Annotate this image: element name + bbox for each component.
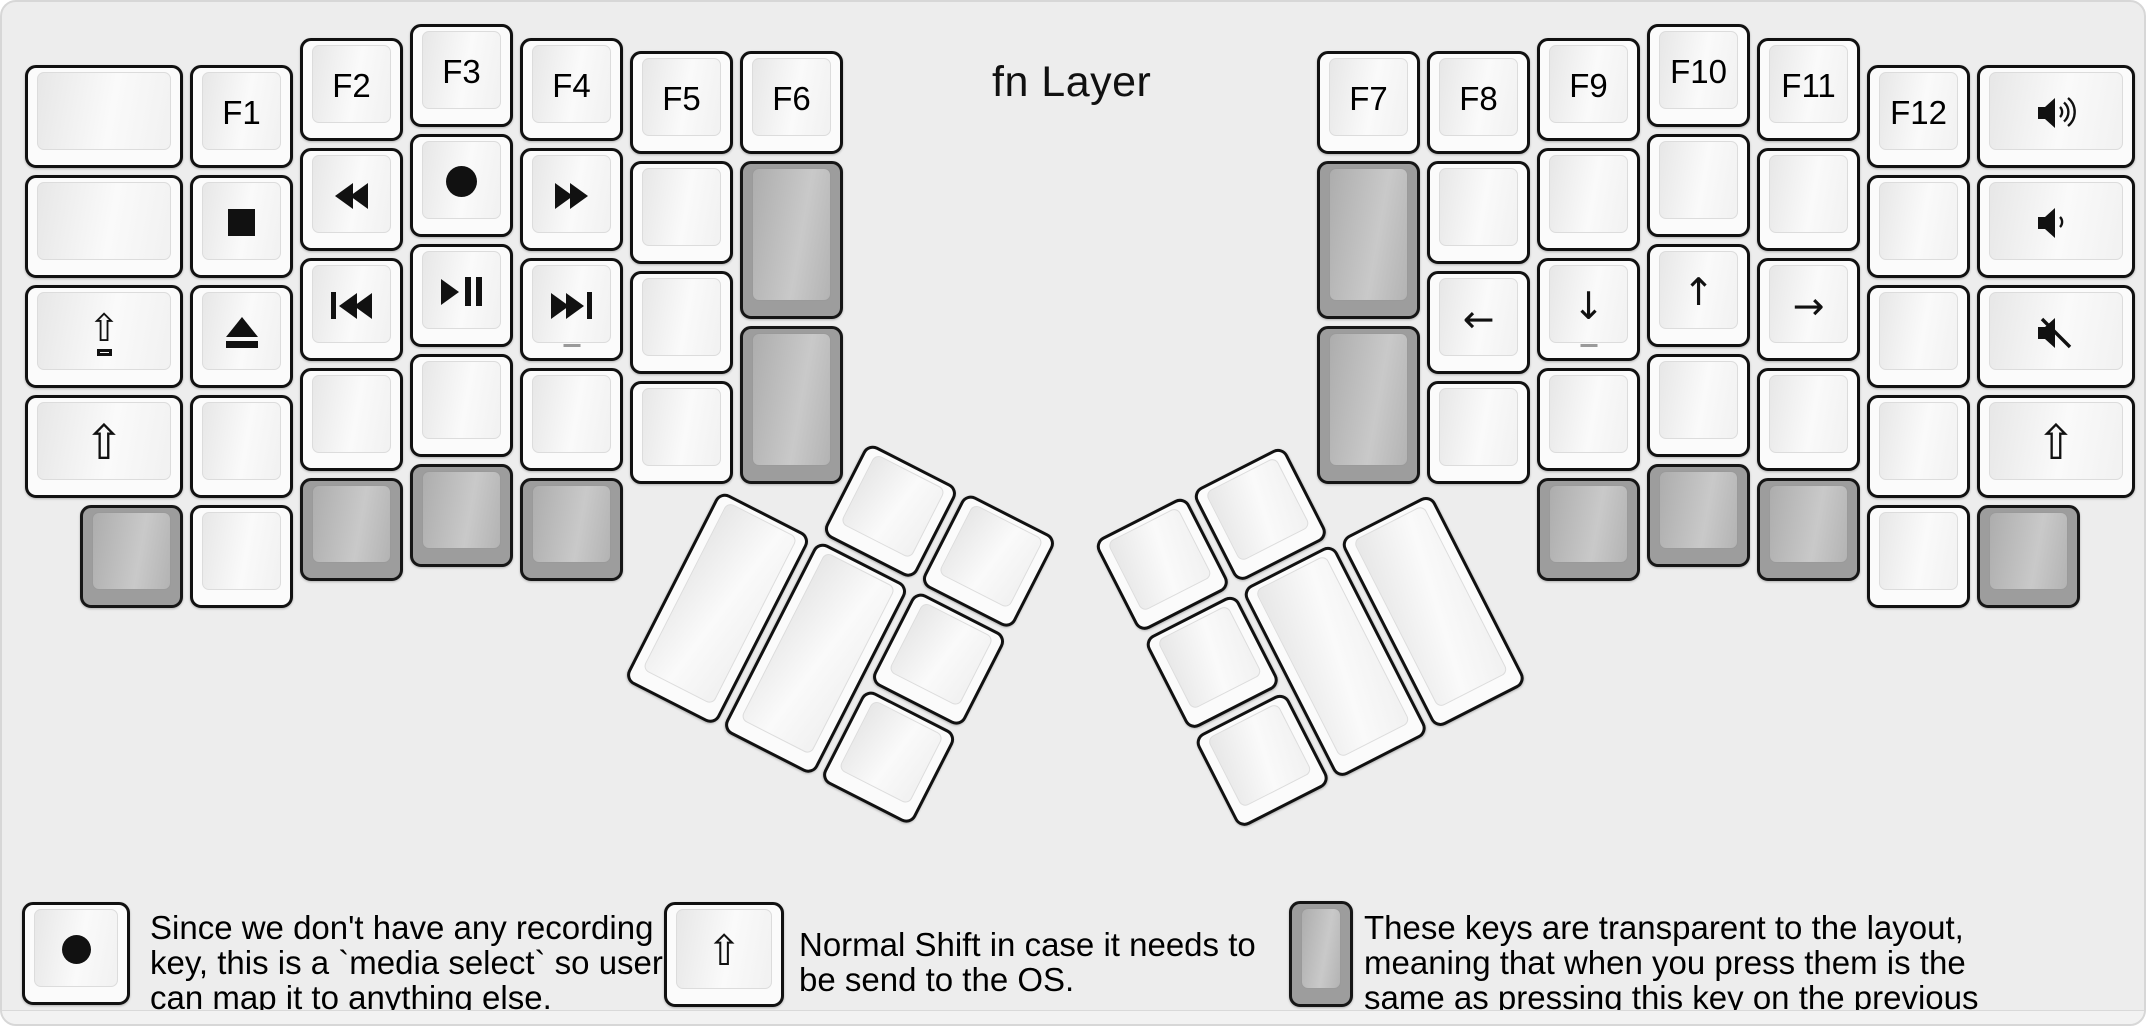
record-icon (62, 935, 91, 964)
key-label: F4 (552, 67, 591, 105)
caps-shift-icon: ⇧ (88, 309, 120, 356)
keytop (202, 512, 281, 590)
key-transparent[interactable] (1537, 478, 1640, 581)
keytop (532, 485, 611, 563)
shift-icon: ⇧ (2036, 419, 2076, 467)
key-blank[interactable] (1867, 505, 1970, 608)
record-icon (446, 166, 477, 197)
keytop (1769, 375, 1848, 453)
keytop (1549, 375, 1628, 453)
key-blank[interactable] (190, 395, 293, 498)
key-blank[interactable] (25, 65, 183, 168)
keytop (1659, 471, 1738, 549)
layer-title: fn Layer (992, 58, 1151, 107)
play-pause-icon (441, 277, 482, 306)
keytop (752, 168, 831, 301)
key-blank[interactable] (1647, 134, 1750, 237)
volume-down-icon (2034, 204, 2078, 242)
key-transparent[interactable] (300, 478, 403, 581)
fast-forward-icon (555, 183, 588, 209)
key-f12[interactable]: F12 (1867, 65, 1970, 168)
key-fast-forward[interactable] (520, 148, 623, 251)
tap-underscore-hint (1580, 344, 1597, 347)
keytop (1879, 182, 1958, 260)
key-record[interactable] (410, 134, 513, 237)
key-transparent[interactable] (410, 464, 513, 567)
key-transparent[interactable] (1757, 478, 1860, 581)
page-footer-divider (2, 1010, 2144, 1024)
key-f11[interactable]: F11 (1757, 38, 1860, 141)
keytop (1329, 168, 1408, 301)
key-blank[interactable] (520, 368, 623, 471)
stop-icon (228, 209, 255, 236)
eject-icon (226, 317, 258, 348)
keytop (422, 361, 501, 439)
keytop (642, 278, 721, 356)
key-play-pause[interactable] (410, 244, 513, 347)
keytop (1549, 485, 1628, 563)
key-blank[interactable] (1867, 285, 1970, 388)
key-label: F12 (1890, 94, 1947, 132)
key-blank[interactable] (1757, 368, 1860, 471)
key-f5[interactable]: F5 (630, 51, 733, 154)
keytop (752, 333, 831, 466)
key-transparent[interactable] (1317, 326, 1420, 484)
key-f6[interactable]: F6 (740, 51, 843, 154)
keytop (1879, 512, 1958, 590)
key-f8[interactable]: F8 (1427, 51, 1530, 154)
tap-underscore-hint (563, 344, 580, 347)
next-track-icon (551, 292, 592, 319)
key-label: F10 (1670, 53, 1727, 91)
key-eject[interactable] (190, 285, 293, 388)
keytop (1439, 388, 1518, 466)
left-arrow-icon: ← (1463, 300, 1495, 338)
mute-icon (2034, 314, 2078, 352)
down-arrow-icon: ↓ (1573, 287, 1605, 325)
shift-icon: ⇧ (84, 419, 124, 467)
key-transparent[interactable] (1647, 464, 1750, 567)
key-rewind[interactable] (300, 148, 403, 251)
key-blank[interactable] (1647, 354, 1750, 457)
keytop (1329, 333, 1408, 466)
key-blank[interactable] (1757, 148, 1860, 251)
keytop (1107, 507, 1213, 612)
keytop (92, 512, 171, 590)
key-shift[interactable]: ⇧ (25, 395, 183, 498)
keytop (37, 72, 171, 150)
key-blank[interactable] (630, 381, 733, 484)
keytop (1207, 703, 1313, 808)
keytop (938, 504, 1044, 609)
key-blank[interactable] (1867, 395, 1970, 498)
key-arrow-left[interactable]: ← (1427, 271, 1530, 374)
key-label: F3 (442, 53, 481, 91)
legend-text-transparent: These keys are transparent to the layout… (1364, 910, 2004, 1026)
keytop (1659, 141, 1738, 219)
key-blank[interactable] (1427, 381, 1530, 484)
shift-icon: ⇧ (706, 930, 741, 972)
key-label: F5 (662, 80, 701, 118)
key-blank[interactable] (190, 505, 293, 608)
key-f10[interactable]: F10 (1647, 24, 1750, 127)
keytop (1205, 457, 1311, 562)
key-arrow-down[interactable]: ↓ (1537, 258, 1640, 361)
key-label: F8 (1459, 80, 1498, 118)
key-blank[interactable] (1867, 175, 1970, 278)
key-f3[interactable]: F3 (410, 24, 513, 127)
key-next-track[interactable] (520, 258, 623, 361)
keytop (642, 388, 721, 466)
key-arrow-up[interactable]: ↑ (1647, 244, 1750, 347)
key-f9[interactable]: F9 (1537, 38, 1640, 141)
keytop (642, 168, 721, 246)
prev-track-icon (331, 292, 372, 319)
key-blank[interactable] (25, 175, 183, 278)
key-transparent[interactable] (740, 326, 843, 484)
volume-up-icon (2034, 94, 2078, 132)
key-blank[interactable] (630, 271, 733, 374)
key-transparent[interactable] (1317, 161, 1420, 319)
key-label: F7 (1349, 80, 1388, 118)
legend-key-transparent (1289, 901, 1353, 1007)
keytop (1157, 605, 1263, 710)
keytop (422, 471, 501, 549)
keytop (1659, 361, 1738, 439)
key-f2[interactable]: F2 (300, 38, 403, 141)
keytop (888, 602, 994, 707)
key-transparent[interactable] (520, 478, 623, 581)
rewind-icon (335, 183, 368, 209)
key-f7[interactable]: F7 (1317, 51, 1420, 154)
key-blank[interactable] (1427, 161, 1530, 264)
legend-text-record: Since we don't have any recording key, t… (150, 910, 690, 1015)
key-transparent[interactable] (80, 505, 183, 608)
keytop (1879, 292, 1958, 370)
key-label: F9 (1569, 67, 1608, 105)
key-stop[interactable] (190, 175, 293, 278)
key-caps-shift[interactable]: ⇧ (25, 285, 183, 388)
keyboard-layout-canvas: fn Layer ⇧⇧F1F2F3F4F5F6F7F8←F9↓F10↑F11→F… (0, 0, 2146, 1026)
key-blank[interactable] (630, 161, 733, 264)
key-mute[interactable] (1977, 285, 2135, 388)
key-blank[interactable] (1537, 368, 1640, 471)
key-shift[interactable]: ⇧ (1977, 395, 2135, 498)
keytop (1989, 512, 2068, 590)
key-blank[interactable] (410, 354, 513, 457)
keytop (1769, 485, 1848, 563)
key-f1[interactable]: F1 (190, 65, 293, 168)
keytop (37, 182, 171, 260)
keytop (312, 375, 391, 453)
legend-text-shift: Normal Shift in case it needs to be send… (799, 927, 1259, 997)
keytop (532, 375, 611, 453)
key-transparent[interactable] (1977, 505, 2080, 608)
key-volume-down[interactable] (1977, 175, 2135, 278)
key-transparent[interactable] (740, 161, 843, 319)
key-arrow-right[interactable]: → (1757, 258, 1860, 361)
keytop (838, 700, 944, 805)
key-label: F6 (772, 80, 811, 118)
key-f4[interactable]: F4 (520, 38, 623, 141)
legend-key-record (22, 902, 130, 1005)
keytop (1439, 168, 1518, 246)
key-prev-track[interactable] (300, 258, 403, 361)
keytop (1549, 155, 1628, 233)
keytop (840, 454, 946, 559)
key-volume-up[interactable] (1977, 65, 2135, 168)
key-label: F1 (222, 94, 261, 132)
key-blank[interactable] (300, 368, 403, 471)
key-label: F11 (1781, 67, 1835, 105)
key-label: F2 (332, 67, 371, 105)
keytop (202, 402, 281, 480)
keytop (1301, 908, 1341, 989)
keytop (1769, 155, 1848, 233)
up-arrow-icon: ↑ (1683, 273, 1715, 311)
keytop (1879, 402, 1958, 480)
right-arrow-icon: → (1793, 287, 1825, 325)
key-blank[interactable] (1537, 148, 1640, 251)
keytop (312, 485, 391, 563)
